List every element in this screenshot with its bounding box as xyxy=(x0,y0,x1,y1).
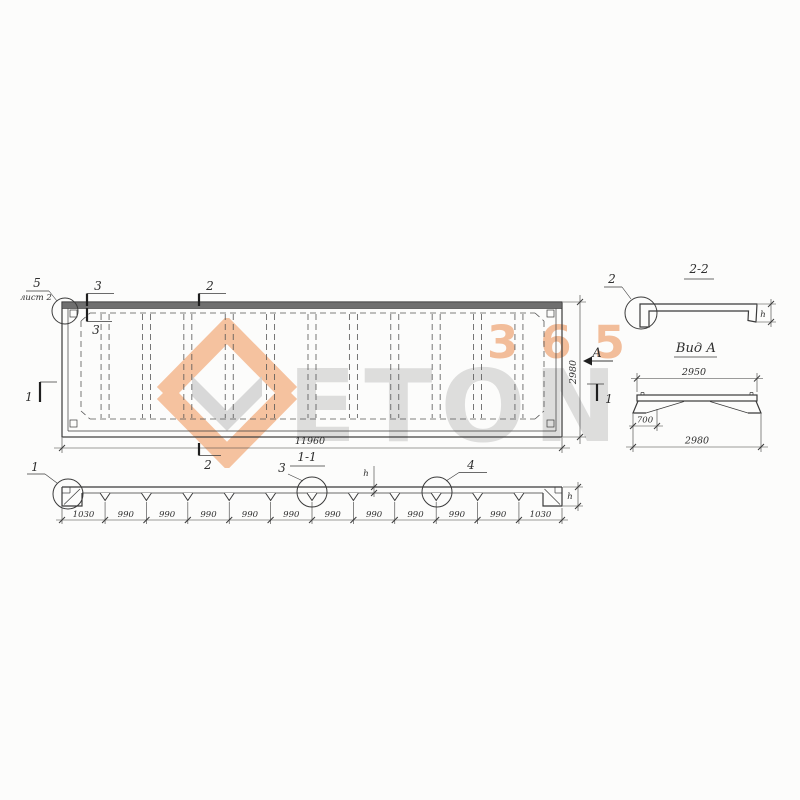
dim-plan-width: 2980 xyxy=(568,360,579,385)
section-2-2-profile xyxy=(640,304,757,327)
section-mark-1-left: 1 xyxy=(25,382,57,404)
section-left-end-block xyxy=(62,487,82,506)
callout-4-circle xyxy=(422,477,452,507)
svg-text:990: 990 xyxy=(407,510,424,520)
svg-text:1030: 1030 xyxy=(73,510,95,520)
section-mark-3-inner-label: 3 xyxy=(92,323,100,337)
callout-5-label: 5 xyxy=(33,276,41,290)
section-height-dim: h xyxy=(563,482,583,511)
svg-text:990: 990 xyxy=(325,510,342,520)
section-right-end-block xyxy=(543,487,562,506)
section-mark-1-right: 1 xyxy=(587,384,613,406)
section-2-2-title: 2-2 xyxy=(688,262,708,276)
svg-text:990: 990 xyxy=(200,510,217,520)
section-rib-notches xyxy=(100,493,524,501)
view-a-marker-letter: А xyxy=(591,346,602,361)
svg-text:990: 990 xyxy=(118,510,135,520)
drawing-sheet: ETON 365 xyxy=(0,0,800,800)
callout-1-circle xyxy=(53,479,83,509)
view-a-arrow: А xyxy=(583,346,613,366)
plan-view xyxy=(62,302,562,437)
dim-plan-length: 11960 xyxy=(295,436,325,447)
svg-text:990: 990 xyxy=(283,510,300,520)
section-mark-3-inner: 3 xyxy=(87,308,112,337)
section-1-1-title: 1-1 xyxy=(297,450,316,464)
view-a-dim-leg-offset: 700 xyxy=(637,416,654,426)
svg-text:990: 990 xyxy=(449,510,466,520)
svg-text:990: 990 xyxy=(366,510,383,520)
section-mark-2-bottom-label: 2 xyxy=(203,458,212,472)
svg-text:1030: 1030 xyxy=(530,510,552,520)
plan-dim-width: 2980 xyxy=(563,295,586,444)
svg-text:990: 990 xyxy=(159,510,176,520)
callout-2-circle xyxy=(625,297,657,329)
callout-2-label: 2 xyxy=(607,272,616,286)
section-2-2-height-dim: h xyxy=(757,299,776,327)
section-height-label: h xyxy=(567,492,572,502)
callout-3-label: 3 xyxy=(278,461,286,475)
view-a: Вид А 2950 700 xyxy=(626,341,768,452)
svg-text:990: 990 xyxy=(490,510,507,520)
section-mark-2-bottom: 2 xyxy=(199,443,221,472)
callout-5-note: лист 2 xyxy=(20,293,52,303)
section-mark-3-label: 3 xyxy=(94,279,102,293)
callout-4-label: 4 xyxy=(466,458,475,472)
section-mark-1-left-label: 1 xyxy=(25,390,33,404)
section-mark-2-label: 2 xyxy=(205,279,214,293)
callout-3: 3 xyxy=(278,461,327,507)
callout-5: 5 лист 2 xyxy=(20,276,78,324)
view-a-dim-top: 2950 xyxy=(681,367,706,378)
plan-top-edge-band xyxy=(63,303,562,309)
view-a-title: Вид А xyxy=(675,341,716,356)
view-a-profile xyxy=(633,393,761,414)
flange-thickness-label: h xyxy=(363,469,368,479)
svg-text:990: 990 xyxy=(242,510,259,520)
flange-thickness-dim: h xyxy=(363,466,377,497)
section-mark-1-right-label: 1 xyxy=(605,392,613,406)
plan-rib-lines xyxy=(101,314,523,418)
section-1-1: 1-1 10309909909909909909909909909909 xyxy=(27,450,583,524)
section-2-2: 2-2 2 h xyxy=(604,262,776,329)
callout-1-label: 1 xyxy=(31,460,39,474)
section-2-2-height-label: h xyxy=(760,310,765,320)
view-a-arrowhead-icon xyxy=(583,357,592,366)
view-a-dim-bottom: 2980 xyxy=(684,436,709,447)
callout-1: 1 xyxy=(27,460,83,509)
